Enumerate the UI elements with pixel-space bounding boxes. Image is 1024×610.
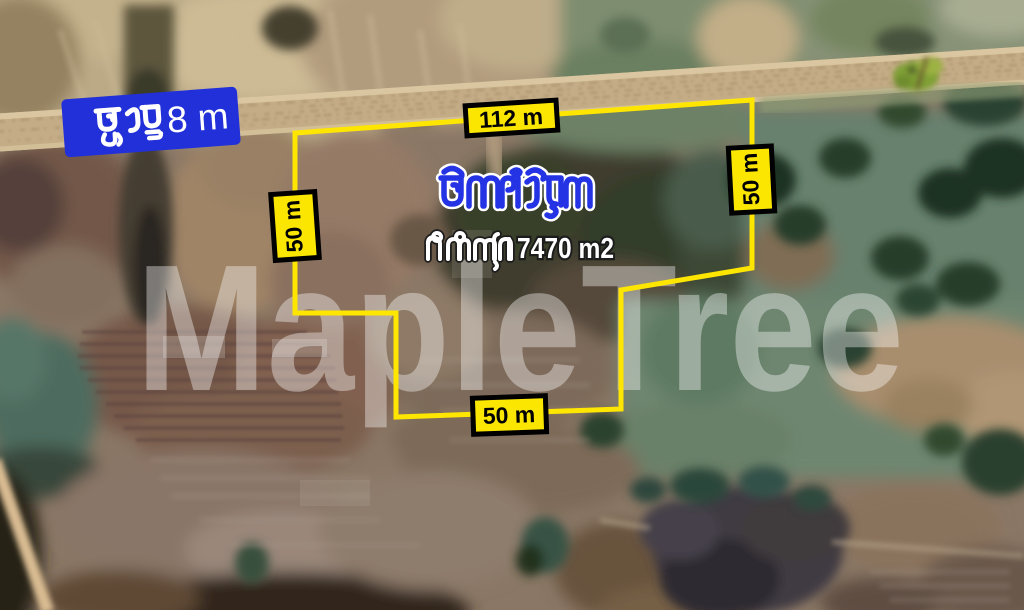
svg-text:50 m: 50 m bbox=[482, 401, 535, 429]
svg-text:8 m: 8 m bbox=[165, 95, 230, 140]
svg-text:112 m: 112 m bbox=[478, 103, 543, 133]
svg-text:50 m: 50 m bbox=[736, 152, 765, 206]
svg-text:7470 m2: 7470 m2 bbox=[517, 233, 614, 265]
svg-text:50 m: 50 m bbox=[278, 199, 308, 253]
